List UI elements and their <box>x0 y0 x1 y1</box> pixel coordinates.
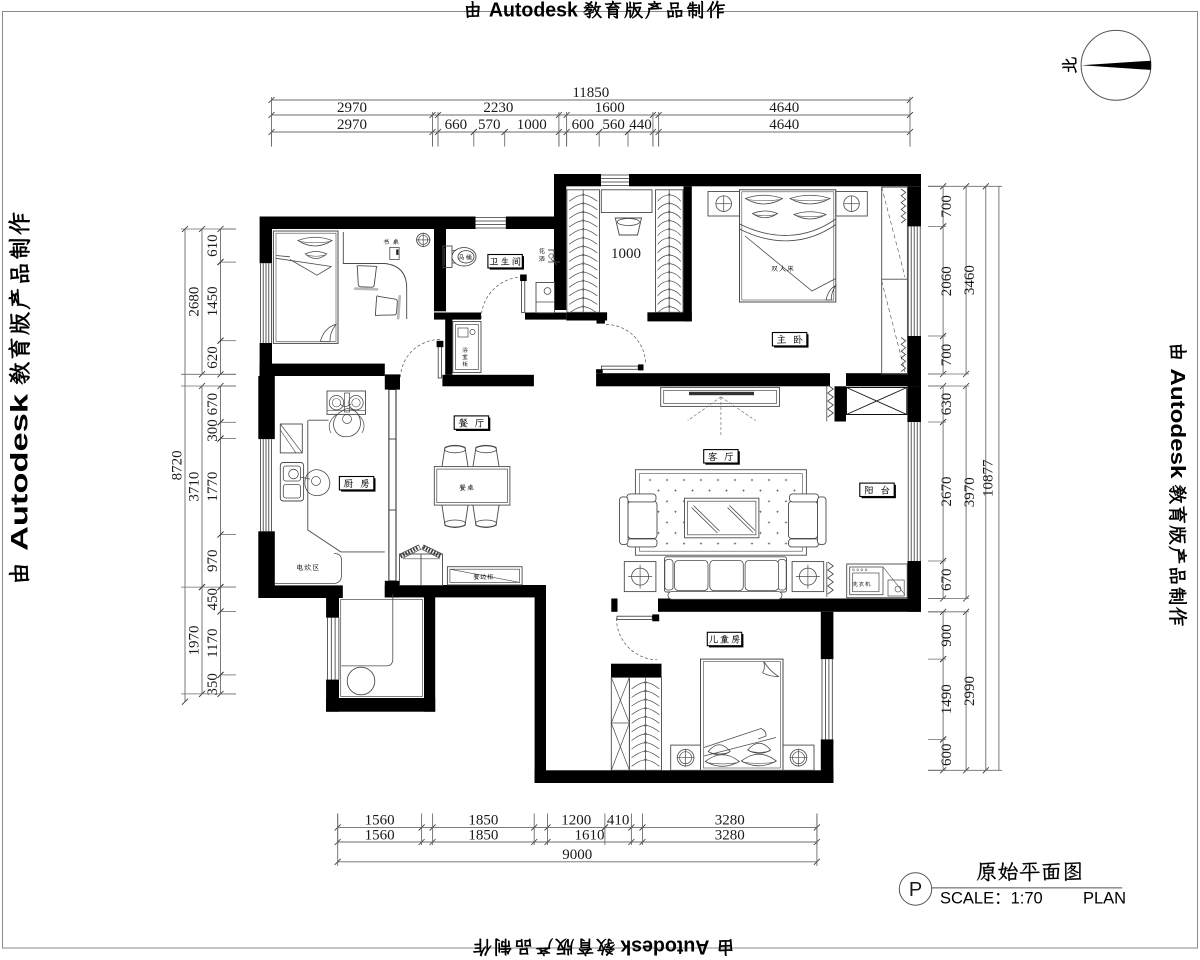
svg-text:2060: 2060 <box>939 266 955 296</box>
svg-text:1170: 1170 <box>205 628 221 657</box>
svg-text:1600: 1600 <box>595 100 625 116</box>
svg-text:8720: 8720 <box>170 450 186 480</box>
svg-text:900: 900 <box>939 624 955 647</box>
svg-text:11850: 11850 <box>572 85 609 101</box>
svg-text:1200: 1200 <box>561 813 591 829</box>
svg-text:570: 570 <box>478 117 501 133</box>
svg-text:1770: 1770 <box>205 472 221 502</box>
svg-text:1850: 1850 <box>468 827 498 843</box>
svg-text:700: 700 <box>939 344 955 367</box>
svg-text:600: 600 <box>572 117 595 133</box>
svg-text:970: 970 <box>205 550 221 573</box>
svg-text:670: 670 <box>205 393 221 416</box>
svg-text:610: 610 <box>205 234 221 257</box>
svg-text:620: 620 <box>205 346 221 369</box>
svg-text:1560: 1560 <box>365 827 395 843</box>
svg-text:4640: 4640 <box>769 117 799 133</box>
svg-text:10877: 10877 <box>980 459 996 497</box>
svg-text:630: 630 <box>939 393 955 416</box>
svg-text:670: 670 <box>939 569 955 592</box>
svg-text:660: 660 <box>445 117 468 133</box>
svg-text:1560: 1560 <box>365 813 395 829</box>
svg-text:1850: 1850 <box>468 813 498 829</box>
svg-text:450: 450 <box>205 588 221 611</box>
svg-text:9000: 9000 <box>562 847 592 863</box>
svg-text:Autodesk: Autodesk <box>1166 368 1189 479</box>
svg-text:1450: 1450 <box>205 286 221 316</box>
svg-text:300: 300 <box>205 419 221 442</box>
svg-text:P: P <box>909 879 922 901</box>
svg-text:2680: 2680 <box>187 287 203 317</box>
svg-text:3970: 3970 <box>962 477 978 507</box>
svg-text:Autodesk: Autodesk <box>7 393 34 551</box>
svg-text:3280: 3280 <box>715 813 745 829</box>
svg-text:SCALE：1:70: SCALE：1:70 <box>940 890 1043 908</box>
svg-text:2230: 2230 <box>483 100 513 116</box>
svg-text:1970: 1970 <box>187 626 203 656</box>
svg-text:Autodesk: Autodesk <box>489 0 579 22</box>
svg-text:3280: 3280 <box>715 827 745 843</box>
svg-text:2990: 2990 <box>962 676 978 706</box>
svg-text:3460: 3460 <box>962 265 978 295</box>
svg-text:600: 600 <box>939 744 955 767</box>
svg-text:410: 410 <box>607 813 630 829</box>
svg-text:1490: 1490 <box>939 684 955 714</box>
svg-text:1000: 1000 <box>611 246 641 262</box>
svg-text:2970: 2970 <box>337 100 367 116</box>
svg-text:700: 700 <box>939 195 955 218</box>
svg-text:1000: 1000 <box>517 117 547 133</box>
svg-text:Autodesk: Autodesk <box>620 936 710 958</box>
svg-text:PLAN: PLAN <box>1083 890 1126 908</box>
svg-text:4640: 4640 <box>769 100 799 116</box>
svg-text:1610: 1610 <box>575 827 605 843</box>
svg-text:3710: 3710 <box>187 472 203 502</box>
svg-text:2670: 2670 <box>939 477 955 507</box>
svg-text:560: 560 <box>602 117 625 133</box>
svg-text:2970: 2970 <box>337 117 367 133</box>
svg-text:440: 440 <box>629 117 652 133</box>
